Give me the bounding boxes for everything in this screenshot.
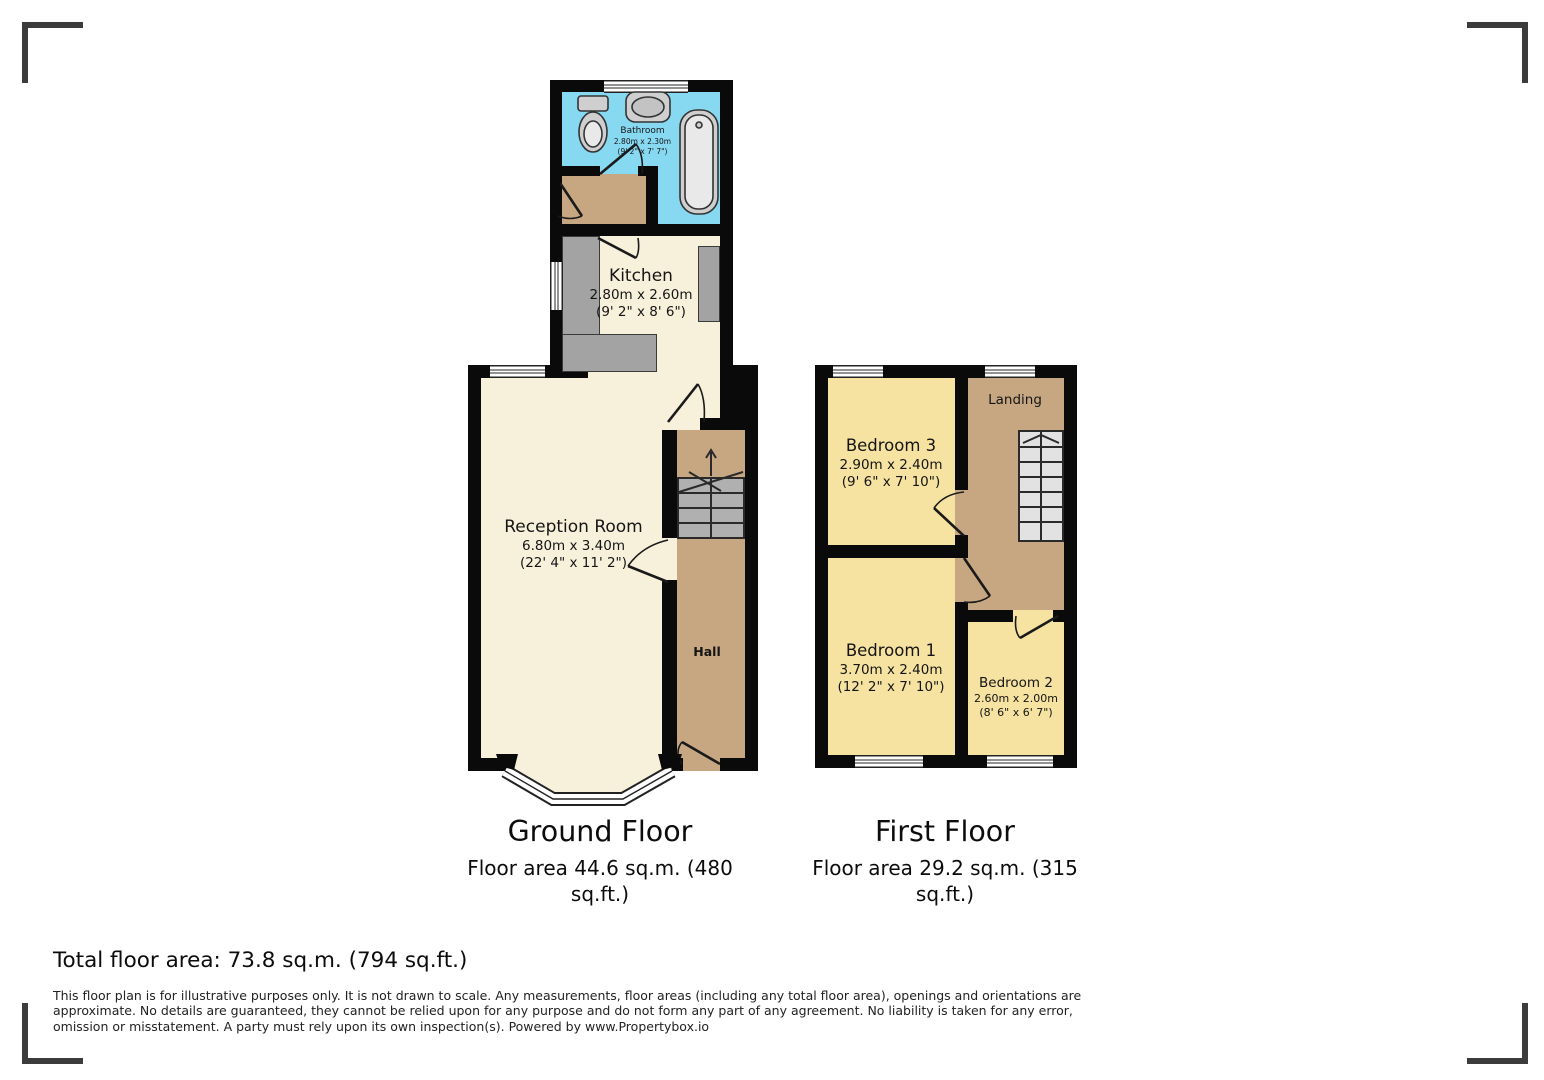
room-imperial-dims: (8' 6" x 6' 7") xyxy=(956,706,1076,720)
room-name: Bedroom 2 xyxy=(956,675,1076,692)
window-icon xyxy=(855,755,923,768)
room-metric-dims: 2.60m x 2.00m xyxy=(956,692,1076,706)
ground-floor-area-text: Floor area 44.6 sq.m. (480 sq.ft.) xyxy=(464,855,736,907)
first-floor-area-text: Floor area 29.2 sq.m. (315 sq.ft.) xyxy=(809,855,1081,907)
landing-label: Landing xyxy=(975,392,1055,409)
window-icon xyxy=(833,365,883,378)
door-icon xyxy=(928,482,970,540)
window-icon xyxy=(987,755,1053,768)
first-floor-plan: Bedroom 3 2.90m x 2.40m (9' 6" x 7' 10")… xyxy=(0,0,1544,1080)
disclaimer-text: This floor plan is for illustrative purp… xyxy=(53,988,1093,1034)
bedroom3-label: Bedroom 3 2.90m x 2.40m (9' 6" x 7' 10") xyxy=(816,436,966,490)
bedroom1-label: Bedroom 1 3.70m x 2.40m (12' 2" x 7' 10"… xyxy=(816,641,966,695)
bedroom2-label: Bedroom 2 2.60m x 2.00m (8' 6" x 6' 7") xyxy=(956,675,1076,719)
ground-floor-title: Ground Floor xyxy=(430,815,770,848)
window-icon xyxy=(985,365,1035,378)
room-name: Bedroom 1 xyxy=(816,641,966,662)
total-floor-area: Total floor area: 73.8 sq.m. (794 sq.ft.… xyxy=(53,948,467,973)
room-metric-dims: 3.70m x 2.40m xyxy=(816,662,966,679)
floor-plan-page: Bathroom 2.80m x 2.30m (9' 2" x 7' 7") K… xyxy=(0,0,1544,1080)
first-floor-title: First Floor xyxy=(775,815,1115,848)
room-imperial-dims: (12' 2" x 7' 10") xyxy=(816,679,966,696)
stairs-icon xyxy=(1018,430,1064,542)
room-name: Bedroom 3 xyxy=(816,436,966,457)
room-metric-dims: 2.90m x 2.40m xyxy=(816,457,966,474)
room-imperial-dims: (9' 6" x 7' 10") xyxy=(816,474,966,491)
door-icon xyxy=(1008,606,1064,648)
door-icon xyxy=(958,552,1002,608)
